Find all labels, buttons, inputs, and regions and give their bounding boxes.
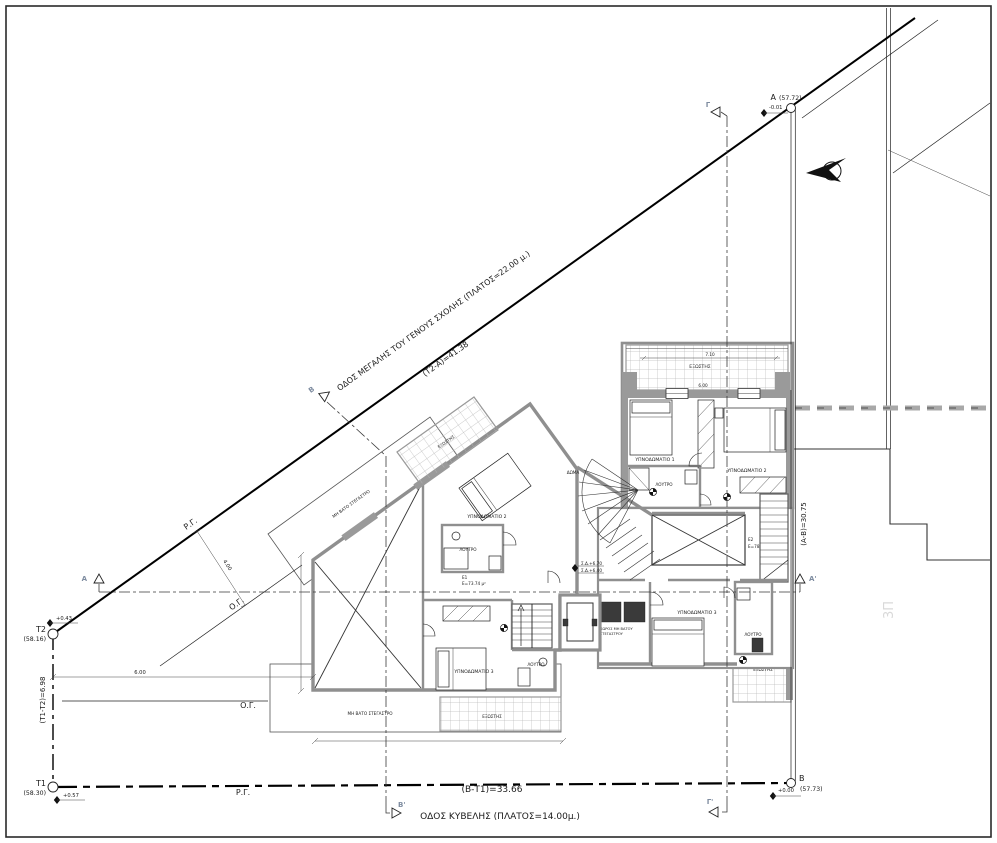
dim-setback: 4.00 bbox=[221, 559, 232, 572]
rg-label-diag: Ρ.Γ. bbox=[182, 516, 199, 532]
balcony-label: ΕΞΩΣΤΗΣ bbox=[482, 714, 502, 719]
area-e1-label: Ε1 bbox=[462, 575, 468, 580]
level-upper: Σ.Δ.+6.70 bbox=[581, 561, 602, 566]
closet-dark bbox=[624, 602, 645, 622]
dim-a-b: (Α-Β)=30.75 bbox=[800, 502, 808, 545]
roof-access-label: ΔΩΜΑ bbox=[567, 470, 580, 475]
sink bbox=[452, 532, 460, 540]
rg-label-south: Ρ.Γ. bbox=[236, 788, 250, 797]
spot-elevation-b: +0.00 bbox=[770, 788, 801, 800]
wardrobe bbox=[443, 606, 490, 621]
column-marker bbox=[649, 488, 656, 495]
bathroom-label: ΛΟΥΤΡΟ bbox=[655, 482, 673, 487]
a-label: Α bbox=[771, 93, 777, 102]
area-e1-value: Ε=73.74 μ² bbox=[462, 581, 486, 586]
bed bbox=[724, 408, 786, 452]
point-t2 bbox=[48, 629, 58, 639]
bathroom-label: ΛΟΥΤΡΟ bbox=[527, 662, 545, 667]
bedroom3-left-label: ΥΠΝΟΔΩΜΑΤΙΟ 3 bbox=[453, 669, 493, 675]
section-a-label: Α bbox=[82, 575, 88, 583]
nightstand bbox=[715, 408, 723, 418]
street-megalis-dim: (Τ2-Α)=41.38 bbox=[421, 340, 470, 379]
svg-text:-0.01: -0.01 bbox=[769, 105, 782, 111]
t1-elevation: (58.30) bbox=[23, 790, 46, 797]
dim-balcony-width: 7.10 bbox=[705, 352, 715, 357]
point-b bbox=[787, 779, 796, 788]
bed bbox=[652, 618, 704, 666]
neighbor-floors-label: 3Π bbox=[882, 601, 897, 619]
section-arrow-b-prime bbox=[392, 808, 401, 818]
balcony-label: ΕΞΩΣΤΗΣ bbox=[689, 364, 710, 370]
floor-plan-canvas: 3Π ΜΗ ΒΑΤΟ ΣΤΕΓΑΣΤΡΟ ΜΗ ΒΑΤΟ ΣΤΕΓΑΣΤΡΟ Λ… bbox=[0, 0, 997, 843]
small-annotation-2: ΣΤΕΓΑΣΤΡΟΥ bbox=[600, 632, 624, 636]
point-t1 bbox=[48, 782, 58, 792]
a-elevation: (57.72) bbox=[779, 95, 802, 102]
north-arrow-icon bbox=[806, 158, 846, 182]
bedroom3-right-label: ΥΠΝΟΔΩΜΑΤΙΟ 3 bbox=[676, 610, 716, 616]
t2-label: Τ2 bbox=[35, 625, 46, 634]
section-arrow-g-prime bbox=[709, 807, 718, 817]
bed bbox=[630, 400, 672, 455]
bedroom1-label: ΥΠΝΟΔΩΜΑΤΙΟ 1 bbox=[634, 457, 674, 463]
dim-t1-t2: (Τ1-Τ2)=6.98 bbox=[39, 677, 47, 724]
neighbor-building-outline bbox=[793, 449, 990, 560]
toilet bbox=[685, 470, 697, 484]
neighbor-plot-lines: 3Π bbox=[793, 8, 990, 619]
street-kyvelis-dim: (Β-Τ1)=33.66 bbox=[462, 785, 523, 795]
building-line-og bbox=[160, 565, 302, 666]
og-label-south: Ο.Γ. bbox=[240, 701, 256, 710]
svg-text:+0.57: +0.57 bbox=[63, 793, 79, 799]
column-marker bbox=[739, 656, 746, 663]
bathroom-label: ΛΟΥΤΡΟ bbox=[459, 547, 477, 552]
b-elevation: (57.73) bbox=[800, 786, 823, 793]
elevator-car bbox=[567, 603, 593, 641]
spot-elevation-t1: +0.57 bbox=[54, 793, 85, 804]
section-b-label: Β bbox=[307, 385, 316, 395]
dim-front-offset: 6.00 bbox=[134, 670, 146, 676]
svg-text:+0.43: +0.43 bbox=[56, 616, 72, 622]
point-a bbox=[787, 104, 796, 113]
t2-elevation: (58.16) bbox=[23, 636, 46, 643]
b-label: Β bbox=[799, 774, 805, 783]
stair-right bbox=[760, 494, 788, 582]
closet-dark bbox=[600, 602, 621, 622]
section-g-label: Γ bbox=[706, 101, 711, 109]
toilet bbox=[518, 668, 530, 686]
spot-elevation-t2: +0.43 bbox=[47, 616, 78, 627]
bedroom2-left-label: ΥΠΝΟΔΩΜΑΤΙΟ 2 bbox=[466, 514, 506, 520]
t1-label: Τ1 bbox=[35, 779, 46, 788]
area-e2-label: Ε2 bbox=[748, 537, 754, 542]
bathroom-label: ΛΟΥΤΡΟ bbox=[744, 632, 762, 637]
column-marker bbox=[500, 624, 507, 631]
sink bbox=[737, 588, 750, 600]
dim-balcony-depth: 6.00 bbox=[698, 383, 708, 388]
section-arrow-g bbox=[711, 107, 720, 117]
svg-text:+0.00: +0.00 bbox=[778, 788, 794, 794]
og-label-diag: Ο.Γ. bbox=[227, 596, 245, 613]
section-arrow-a bbox=[94, 574, 104, 583]
drawing-sheet: 3Π ΜΗ ΒΑΤΟ ΣΤΕΓΑΣΤΡΟ ΜΗ ΒΑΤΟ ΣΤΕΓΑΣΤΡΟ Λ… bbox=[0, 0, 997, 843]
bed bbox=[436, 648, 486, 690]
section-b-prime-label: Β' bbox=[398, 801, 405, 809]
section-arrow-b bbox=[318, 388, 332, 402]
section-arrow-a-prime bbox=[795, 574, 805, 583]
toilet bbox=[752, 638, 763, 652]
level-lower: Σ.Δ.+6.40 bbox=[581, 568, 602, 573]
section-a-prime-label: Α' bbox=[809, 575, 817, 583]
toilet bbox=[489, 556, 501, 570]
storage-understair bbox=[740, 477, 786, 493]
street-kyvelis-name: ΟΔΟΣ ΚΥΒΕΛΗΣ (ΠΛΑΤΟΣ=14.00μ.) bbox=[420, 812, 580, 822]
stair-left-unit bbox=[512, 604, 552, 648]
small-annotation-1: ΧΩΡΟΣ ΜΗ ΒΑΤΟΥ bbox=[600, 627, 634, 631]
wardrobe bbox=[698, 400, 714, 468]
bedroom2-right-label: ΥΠΝΟΔΩΜΑΤΙΟ 2 bbox=[726, 468, 766, 474]
section-g-prime-label: Γ' bbox=[707, 798, 714, 806]
